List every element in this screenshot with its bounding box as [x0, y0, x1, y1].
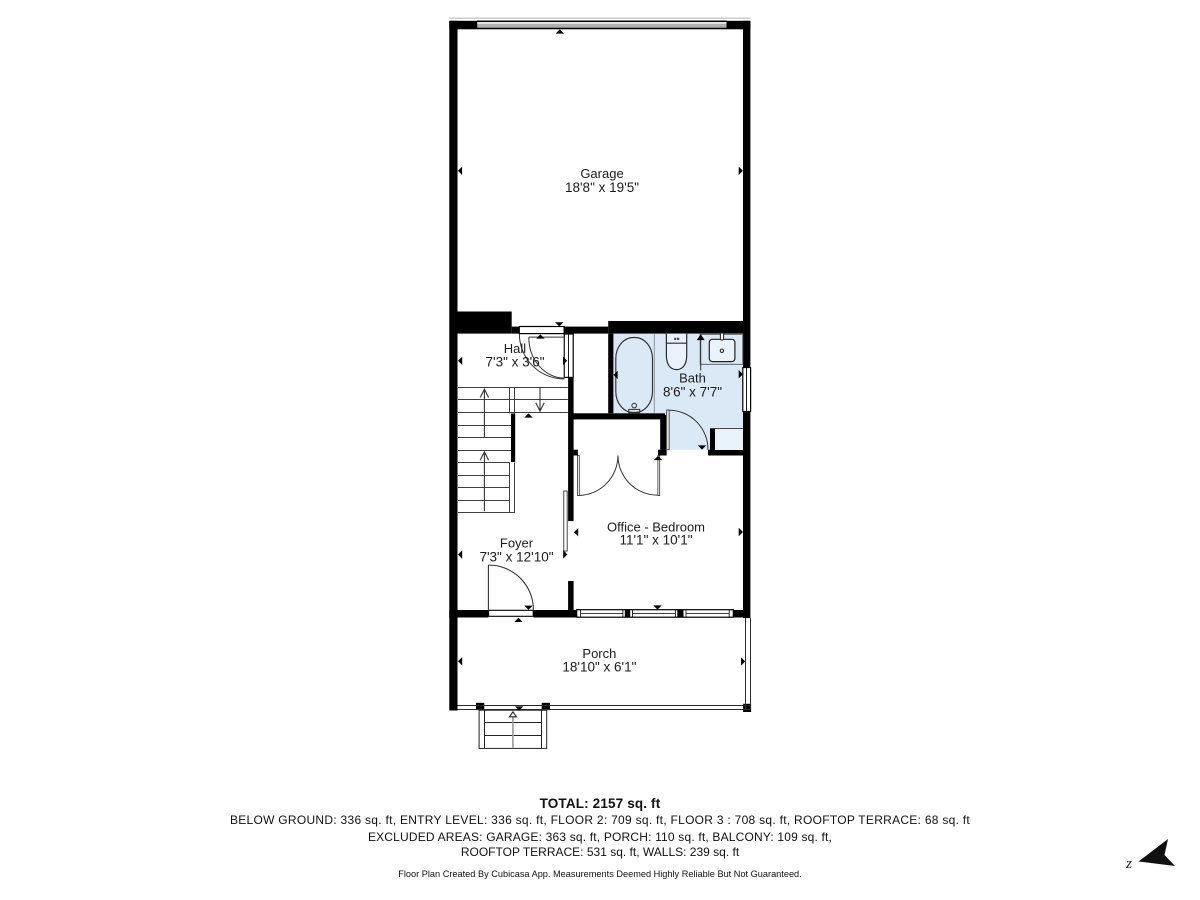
svg-text:7'3" x 3'6": 7'3" x 3'6" [485, 355, 544, 370]
svg-text:11'1" x 10'1": 11'1" x 10'1" [619, 533, 692, 548]
svg-text:8'6" x 7'7": 8'6" x 7'7" [663, 385, 722, 400]
svg-text:Bath: Bath [679, 371, 706, 386]
svg-text:Garage: Garage [580, 166, 623, 181]
svg-text:Foyer: Foyer [500, 536, 534, 551]
svg-text:18'10" x 6'1": 18'10" x 6'1" [562, 660, 636, 675]
svg-text:18'8" x 19'5": 18'8" x 19'5" [565, 180, 639, 195]
svg-text:7'3" x 12'10": 7'3" x 12'10" [479, 550, 553, 565]
